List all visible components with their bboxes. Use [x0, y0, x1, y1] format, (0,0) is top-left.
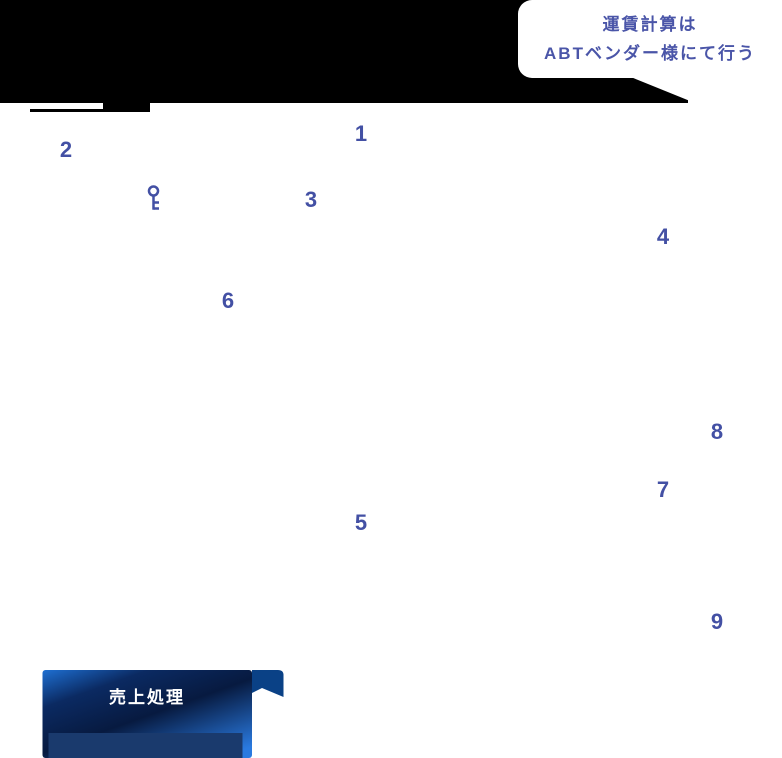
mask-step-line [30, 109, 150, 112]
button-bottom-bar [49, 733, 243, 758]
diagram-canvas: 運賃計算は ABTベンダー様にて行う 1 2 3 4 5 6 7 8 9 [0, 0, 782, 758]
step-number-1: 1 [355, 123, 367, 145]
step-number-7: 7 [657, 479, 669, 501]
step-number-4: 4 [657, 226, 669, 248]
speech-bubble-text: 運賃計算は ABTベンダー様にて行う [518, 10, 782, 68]
bubble-line-1: 運賃計算は [518, 10, 782, 39]
key-icon [144, 182, 164, 214]
step-number-3: 3 [305, 189, 317, 211]
bubble-line-2: ABTベンダー様にて行う [518, 39, 782, 68]
button-fold-tab [252, 670, 284, 697]
sales-button-shape [30, 660, 290, 758]
step-number-9: 9 [711, 611, 723, 633]
step-number-6: 6 [222, 290, 234, 312]
step-number-5: 5 [355, 512, 367, 534]
sales-button-label: 売上処理 [42, 688, 252, 708]
step-number-8: 8 [711, 421, 723, 443]
step-number-2: 2 [60, 139, 72, 161]
mask-step [103, 103, 150, 109]
